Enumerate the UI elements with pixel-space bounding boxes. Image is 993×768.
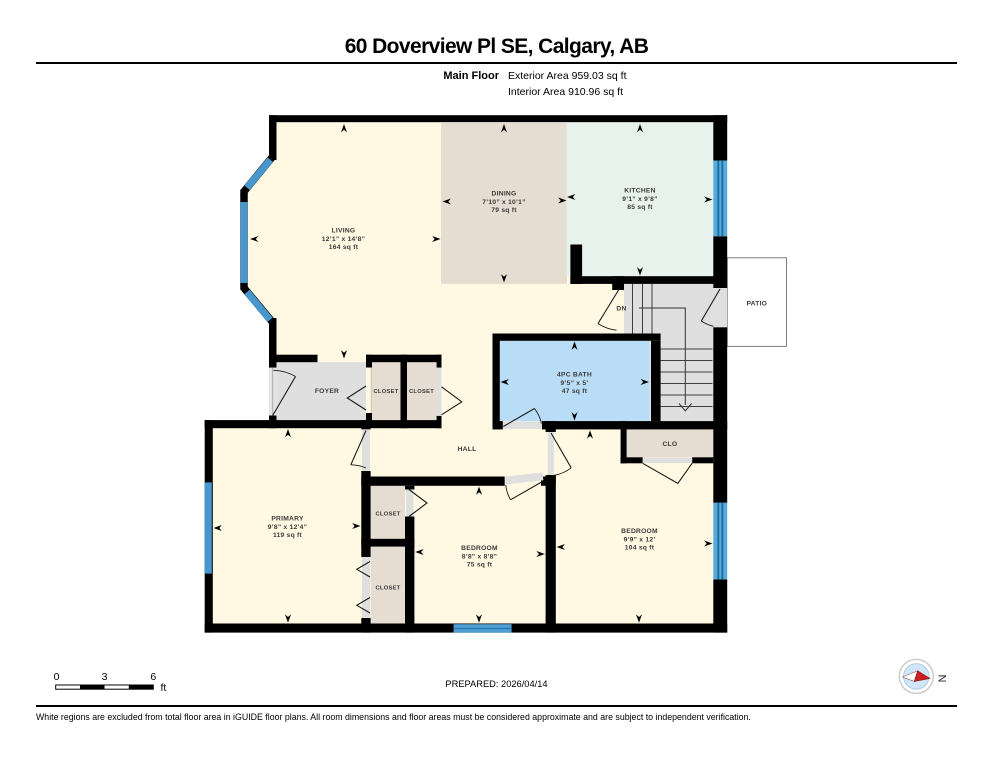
svg-text:BEDROOM: BEDROOM [461,545,498,552]
svg-text:119 sq ft: 119 sq ft [273,532,303,539]
svg-text:CLOSET: CLOSET [375,512,400,518]
svg-text:79 sq ft: 79 sq ft [491,207,517,214]
svg-text:9’9” x 12’: 9’9” x 12’ [624,536,656,543]
svg-text:FOYER: FOYER [315,388,339,395]
svg-text:9’5” x 5’: 9’5” x 5’ [561,380,589,387]
svg-text:CLOSET: CLOSET [375,586,400,592]
svg-text:12’1” x 14’8”: 12’1” x 14’8” [322,236,365,243]
svg-text:DINING: DINING [492,191,517,198]
svg-text:PATIO: PATIO [746,300,767,307]
svg-text:DN: DN [616,306,626,313]
svg-text:PRIMARY: PRIMARY [271,516,304,523]
svg-text:CLO: CLO [662,441,677,448]
svg-text:104 sq ft: 104 sq ft [625,545,655,552]
svg-text:LIVING: LIVING [332,228,356,235]
svg-text:KITCHEN: KITCHEN [624,188,655,195]
svg-text:75 sq ft: 75 sq ft [467,562,493,569]
svg-text:164 sq ft: 164 sq ft [329,244,359,251]
svg-text:CLOSET: CLOSET [373,389,398,395]
svg-text:CLOSET: CLOSET [409,389,434,395]
svg-text:BEDROOM: BEDROOM [621,528,658,535]
svg-text:N: N [936,675,948,683]
svg-text:9’1” x 9’8”: 9’1” x 9’8” [622,196,657,203]
svg-text:7’10” x 10’1”: 7’10” x 10’1” [482,199,525,206]
svg-text:9’8” x 12’4”: 9’8” x 12’4” [268,524,307,531]
svg-text:47 sq ft: 47 sq ft [562,388,588,395]
svg-text:85 sq ft: 85 sq ft [627,204,653,211]
svg-text:HALL: HALL [458,446,477,453]
svg-text:4PC BATH: 4PC BATH [557,372,592,379]
svg-text:8’8” x 8’8”: 8’8” x 8’8” [462,553,497,560]
